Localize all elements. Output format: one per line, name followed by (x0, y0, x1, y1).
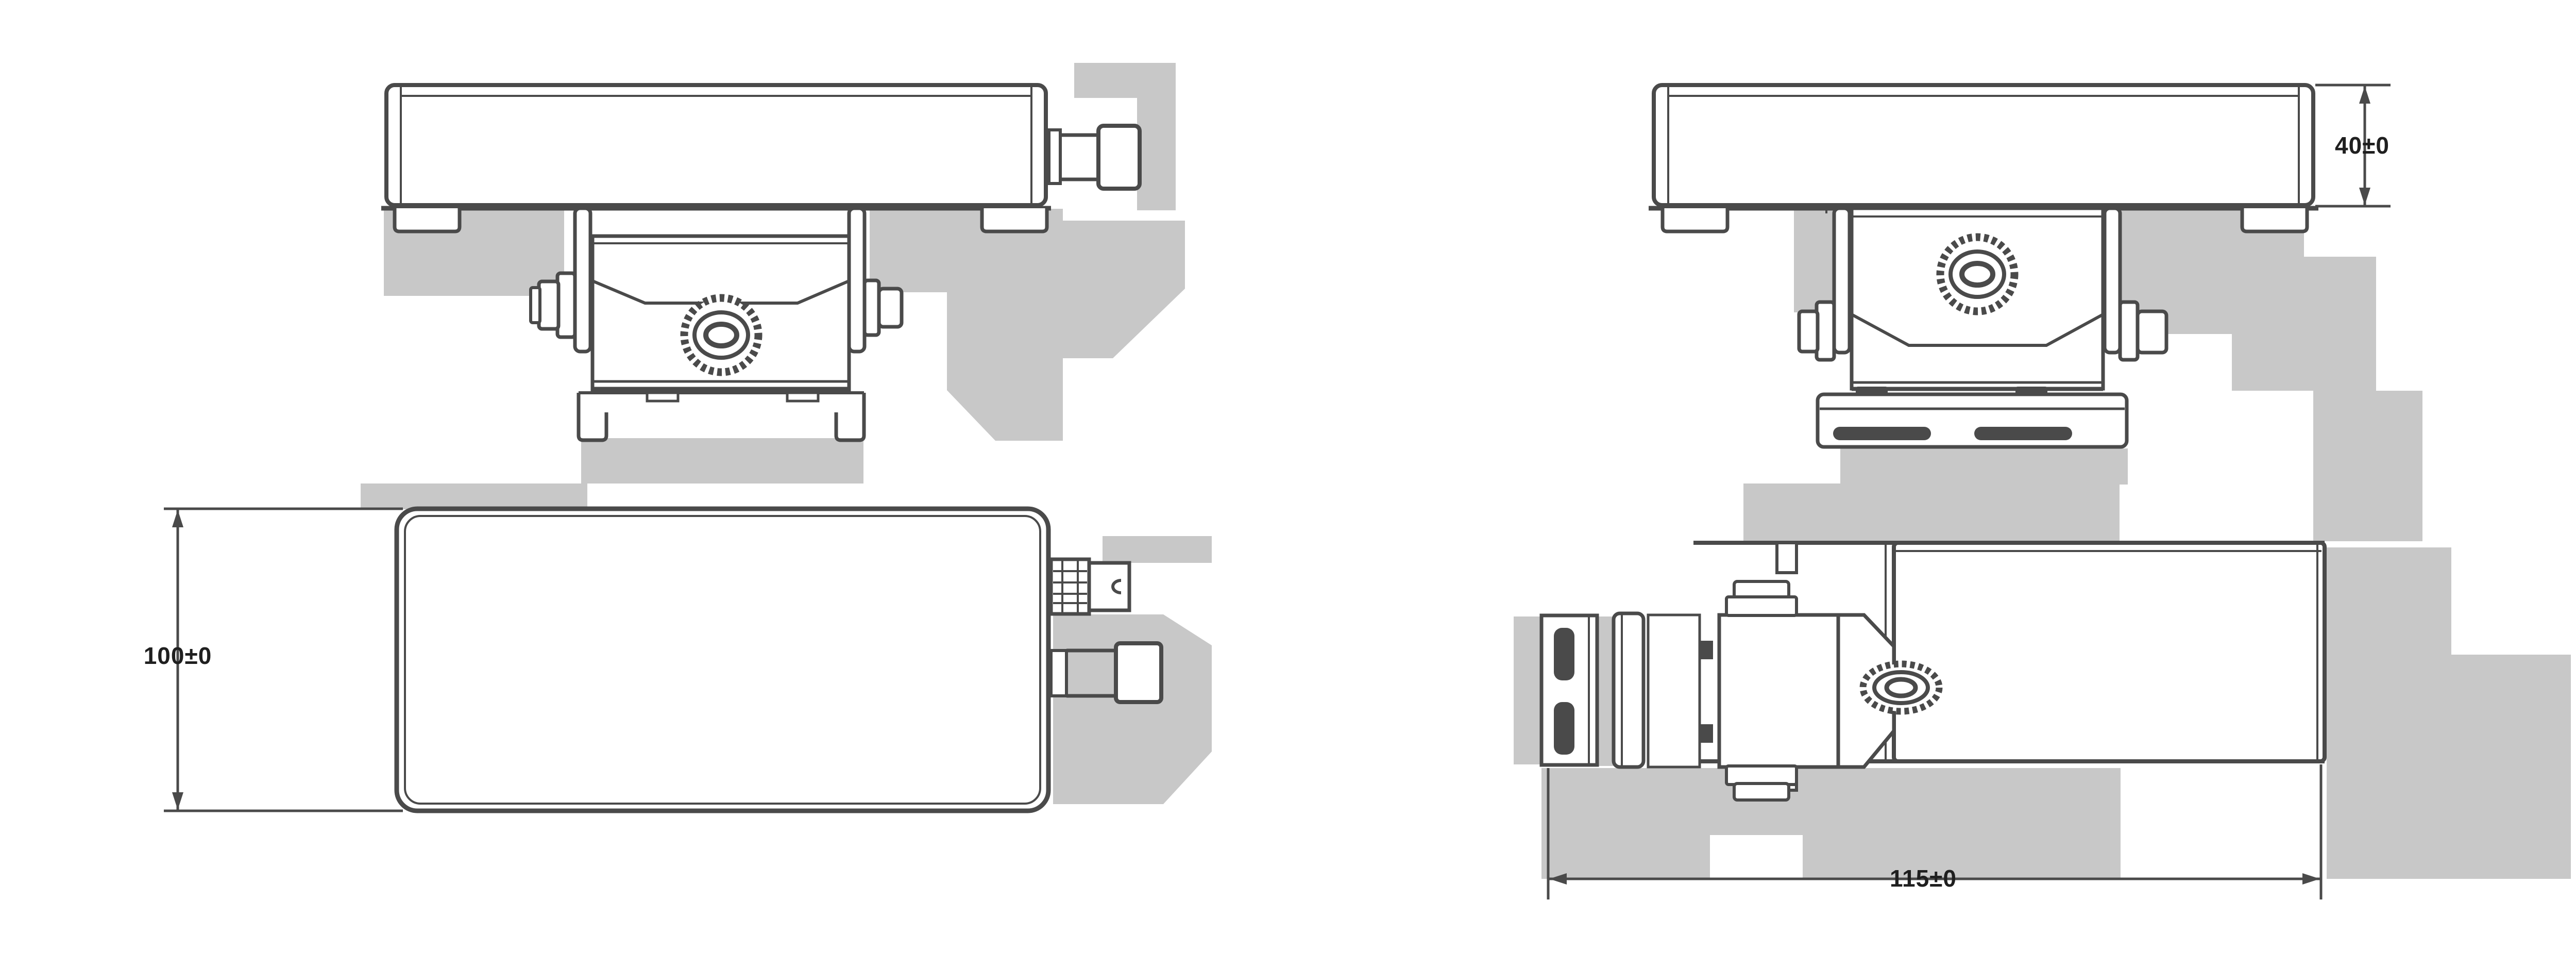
shadow-blob (2313, 391, 2422, 541)
base-slot-lower (1554, 702, 1574, 755)
gland-threads (1051, 559, 1089, 614)
knob-center (1887, 679, 1916, 696)
clamp-bolt-bottom-head (1734, 783, 1789, 800)
top-body (397, 509, 1048, 811)
clamp-bolt-top-flange (1726, 597, 1797, 615)
connector-neck (1051, 651, 1066, 696)
gland-nut (1089, 563, 1129, 610)
knob-center (1962, 263, 1993, 285)
knob-center (706, 324, 737, 346)
rear-body (1654, 85, 2313, 205)
shadow-blob (2451, 655, 2571, 762)
dimension-depth-label: 115±0 (1890, 865, 1957, 892)
front-body (386, 85, 1046, 205)
shadow-blob (2327, 547, 2451, 762)
rail-tab (787, 393, 818, 401)
base-slot-left (1833, 427, 1931, 440)
rear-foot-right (2242, 208, 2307, 231)
adjuster-bolt-left-cap (1799, 311, 1818, 352)
adjuster-bolt-right-cap (2138, 311, 2166, 353)
connector-cap (1116, 643, 1161, 702)
adjuster-bolt-right-flange (2120, 302, 2138, 360)
bracket-side-plate-left (575, 208, 590, 352)
shadow-blob (581, 438, 863, 483)
shadow-blob (1103, 536, 1212, 563)
bracket-channel (1614, 613, 1643, 767)
dimension-width-label: 100±0 (144, 642, 212, 669)
rear-mounting-bracket (1799, 208, 2166, 447)
shadow-blob (1794, 210, 1834, 312)
dimension-height-label: 40±0 (2335, 132, 2389, 159)
arm-tab (1700, 724, 1713, 743)
adjuster-bolt-left-cap (539, 281, 558, 329)
shadow-blob (1840, 448, 2128, 485)
side-body (1894, 543, 2325, 761)
arm-tab (1700, 641, 1713, 659)
connector-neck (1049, 130, 1060, 184)
side-foot-top (1777, 543, 1797, 573)
rail-tab (647, 393, 678, 401)
base-slot-right (1974, 427, 2072, 440)
shadow-blob (1541, 768, 2121, 879)
bracket-side-plate-right (849, 208, 865, 352)
bracket-knob (684, 298, 758, 372)
shadow-blob (1514, 616, 1541, 764)
bracket-side-plate-right (2105, 208, 2120, 353)
shadow-cutout (1710, 835, 1803, 881)
clamp-bolt-bottom-flange (1726, 766, 1797, 785)
drawing-page: 40±0 100±0 (0, 0, 2576, 967)
shadow-blob (1743, 483, 2120, 542)
adjuster-bolt-right-flange (865, 280, 879, 335)
connector-cap (1098, 126, 1140, 189)
bracket-arm-column (1648, 615, 1700, 767)
adjuster-bolt-right-cap (879, 289, 902, 327)
shadow-blob (2327, 761, 2571, 879)
bracket-knob (1940, 237, 2014, 311)
front-foot-right (982, 208, 1047, 231)
front-foot-left (395, 208, 460, 231)
bracket-pivot-plate-side (1719, 615, 1838, 767)
bracket-knob (1863, 664, 1939, 711)
rear-foot-left (1663, 208, 1727, 231)
shadow-blob (361, 483, 587, 509)
base-slot-upper (1554, 628, 1574, 680)
technical-drawing: 40±0 100±0 (0, 0, 2576, 967)
bracket-side-plate-left (1834, 208, 1850, 353)
top-cable-gland (1051, 559, 1129, 614)
adjuster-bolt-left-tip (531, 288, 540, 323)
